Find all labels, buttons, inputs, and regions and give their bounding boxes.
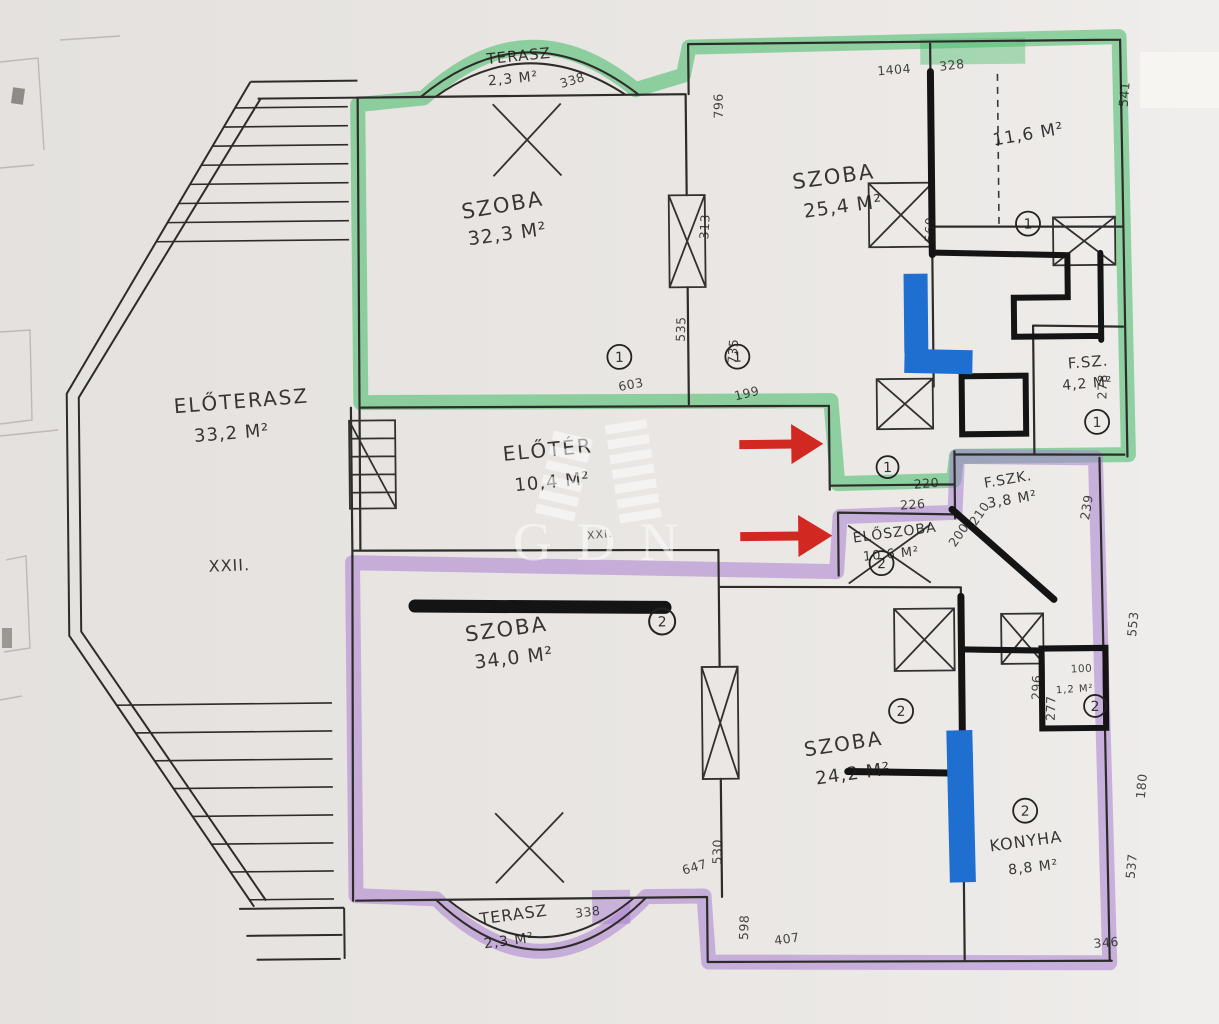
room-label-fsz: F.SZ. [1067,351,1109,372]
svg-text:1: 1 [1093,415,1102,431]
dim-label: 180 [1133,773,1150,800]
blue-mark-bar [959,730,963,882]
floorplan-canvas: TERASZ 2,3 M² SZOBA 32,3 M² SZOBA 25,4 M… [0,0,1219,1024]
svg-text:2: 2 [1021,804,1030,820]
dim-label: 296 [1029,675,1045,701]
scanned-floor-plan: TERASZ 2,3 M² SZOBA 32,3 M² SZOBA 25,4 M… [0,0,1219,1024]
dim-label: 796 [711,93,726,119]
black-marker-line [415,603,665,610]
paper-edge-light [1138,0,1219,1024]
dim-label: 553 [1124,611,1141,638]
dim-label: 278 [1094,374,1110,400]
watermark-text: GDN [513,512,703,572]
dim-label: 530 [709,839,725,865]
dim-label: 313 [696,214,712,240]
svg-text:1: 1 [1023,217,1032,233]
svg-text:1: 1 [883,460,892,476]
dim-label: 100 [1071,663,1093,676]
dim-label: 1404 [877,61,912,79]
svg-text:1: 1 [615,350,624,366]
ink-blot-top-left [11,87,25,105]
dim-label: 277 [1043,695,1059,721]
svg-text:2: 2 [897,704,906,720]
dim-label: 560 [922,217,938,243]
dim-label: 537 [1123,853,1140,880]
dim-label: 541 [1116,81,1133,107]
dim-label: 226 [900,496,926,513]
ink-blot-bottom-left [2,628,12,648]
plot-label-xxii: XXII. [208,555,250,576]
dim-label: 338 [574,903,601,921]
dim-label: 328 [938,56,965,74]
dim-label: 346 [1093,934,1119,951]
dim-label: 598 [736,914,752,940]
svg-text:2: 2 [658,614,667,630]
dim-label: 220 [913,475,939,492]
svg-text:2: 2 [877,556,886,572]
svg-text:1: 1 [733,350,742,366]
dim-label: 535 [673,316,689,342]
svg-text:2: 2 [1091,699,1100,715]
paper-glare [1140,52,1219,108]
